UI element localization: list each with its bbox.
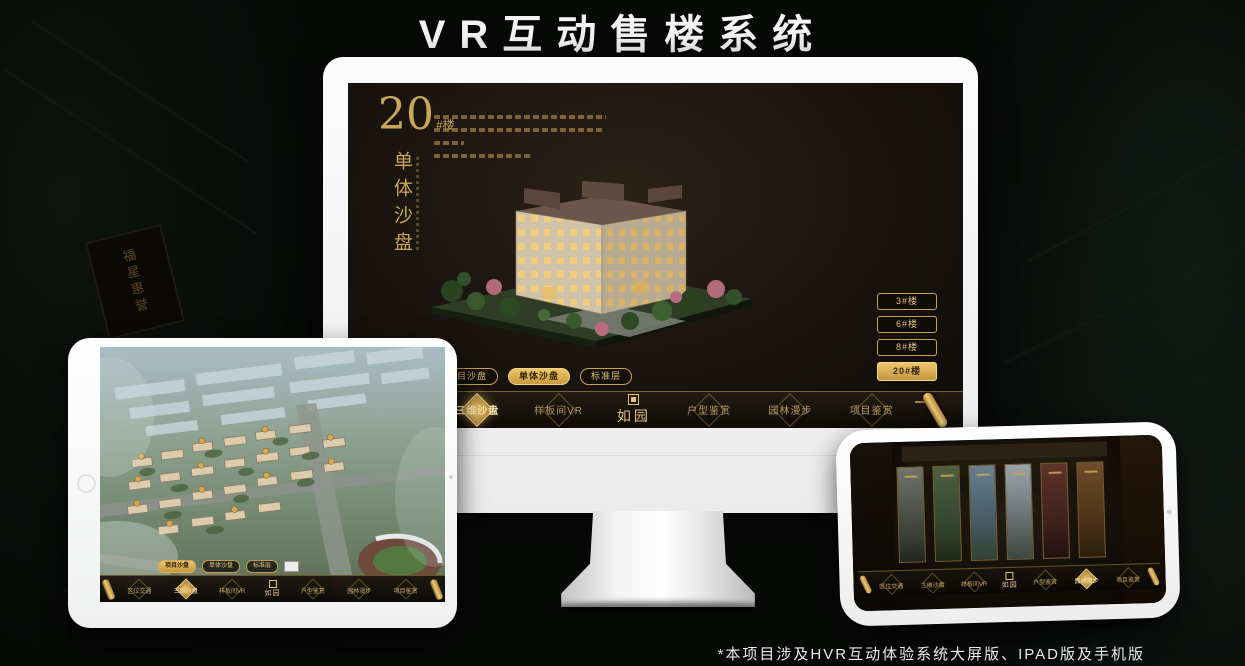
- nav-item-garden-walk[interactable]: 园林漫步: [1067, 569, 1105, 588]
- nav-item-showroom-vr[interactable]: 样板间VR: [523, 401, 595, 419]
- tablet-camera-icon: [449, 475, 453, 479]
- building-number: 20: [378, 89, 434, 140]
- nav-item-project-view[interactable]: 项目鉴赏: [1109, 568, 1147, 587]
- footnote-text: *本项目涉及HVR互动体验系统大屏版、IPAD版及手机版: [718, 643, 1145, 664]
- description-paragraph: [434, 115, 784, 167]
- phone-screen: 区位交通 三维沙盘 样板间VR 如园 户型鉴赏: [850, 435, 1167, 612]
- seal-icon: [269, 580, 277, 588]
- scene-panel[interactable]: [968, 464, 998, 561]
- tablet-tab-project-sandtable[interactable]: 项目沙盘: [158, 560, 196, 573]
- ruyuan-logo: 如园: [260, 580, 286, 598]
- scroll-menu-icon[interactable]: [429, 578, 443, 600]
- floor-button-6[interactable]: 6#楼: [877, 316, 937, 333]
- floor-button-8[interactable]: 8#楼: [877, 339, 937, 356]
- building-3d-model[interactable]: [424, 169, 764, 354]
- plaque-text: 福星惠誉: [118, 247, 153, 318]
- description-line: [434, 115, 606, 119]
- phone-camera-icon: [1167, 509, 1172, 514]
- tab-single-sandtable[interactable]: 单体沙盘: [508, 368, 570, 385]
- page-title: VR互动售楼系统: [0, 2, 1245, 60]
- section-title-vertical: 单体沙盘: [388, 151, 415, 259]
- seal-icon: [628, 394, 639, 405]
- scroll-menu-icon[interactable]: [101, 578, 115, 600]
- page: 福星惠誉 VR互动售楼系统 20#楼 单体沙盘: [0, 0, 1245, 666]
- tab-standard-floor[interactable]: 标准层: [580, 368, 632, 385]
- floor-button-group: 3#楼 6#楼 8#楼 20#楼: [877, 293, 937, 381]
- tablet-mode-tab-group: 项目沙盘 单体沙盘 标准层: [158, 560, 299, 573]
- ruyuan-logo: 如园: [996, 571, 1022, 590]
- scene-panel[interactable]: [932, 465, 962, 562]
- phone-device: 区位交通 三维沙盘 样板间VR 如园 户型鉴赏: [835, 421, 1180, 626]
- nav-item-location[interactable]: 区位交通: [872, 574, 910, 593]
- nav-item-project-view[interactable]: 项目鉴赏: [836, 401, 908, 419]
- description-line: [434, 141, 464, 145]
- tablet-home-button[interactable]: [77, 474, 96, 493]
- scene-panel[interactable]: [1004, 463, 1034, 560]
- scroll-menu-icon[interactable]: [1147, 567, 1161, 587]
- ruyuan-logo: 如园: [604, 394, 664, 426]
- tablet-tab-standard-floor[interactable]: 标准层: [246, 560, 278, 573]
- nav-item-unit-plans[interactable]: 户型鉴赏: [673, 401, 745, 419]
- scene-panel-gallery: [896, 461, 1106, 563]
- background-road-line: [1004, 239, 1245, 364]
- nav-item-garden-walk[interactable]: 园林漫步: [340, 580, 378, 598]
- description-line: [434, 128, 602, 132]
- tablet-screen: 项目沙盘 单体沙盘 标准层 区位交通 三维沙盘 样板间VR: [100, 347, 445, 602]
- description-line: [434, 154, 530, 158]
- nav-item-project-view[interactable]: 项目鉴赏: [387, 580, 425, 598]
- vertical-title-ornament: [416, 157, 419, 253]
- scene-panel[interactable]: [1040, 462, 1070, 559]
- tablet-nav-bar: 区位交通 三维沙盘 样板间VR 如园 户型鉴赏: [100, 575, 445, 602]
- nav-item-showroom-vr[interactable]: 样板间VR: [955, 572, 993, 591]
- tablet-tab-single-sandtable[interactable]: 单体沙盘: [202, 560, 240, 573]
- nav-item-showroom-vr[interactable]: 样板间VR: [213, 580, 251, 598]
- nav-item-3d-sandtable[interactable]: 三维沙盘: [913, 573, 951, 592]
- monitor-stand-shadow: [548, 602, 768, 612]
- background-road-line: [3, 69, 256, 235]
- tablet-device: 项目沙盘 单体沙盘 标准层 区位交通 三维沙盘 样板间VR: [68, 338, 457, 628]
- monitor-stand: [555, 511, 761, 607]
- nav-item-garden-walk[interactable]: 园林漫步: [754, 401, 826, 419]
- mode-tab-group: 项目沙盘 单体沙盘 标准层: [436, 368, 632, 385]
- nav-item-unit-plans[interactable]: 户型鉴赏: [1026, 570, 1064, 589]
- nav-item-unit-plans[interactable]: 户型鉴赏: [294, 580, 332, 598]
- scroll-menu-icon[interactable]: [917, 394, 951, 426]
- floor-button-3[interactable]: 3#楼: [877, 293, 937, 310]
- scroll-menu-icon[interactable]: [859, 575, 873, 595]
- nav-item-3d-sandtable[interactable]: 三维沙盘: [167, 580, 205, 598]
- background-road-line: [1025, 139, 1245, 264]
- seal-icon: [1005, 571, 1013, 579]
- nav-item-location[interactable]: 区位交通: [120, 580, 158, 598]
- scene-panel[interactable]: [896, 466, 926, 563]
- background-plaque: 福星惠誉: [85, 224, 185, 340]
- floor-button-20[interactable]: 20#楼: [877, 362, 937, 381]
- mini-map-icon[interactable]: [284, 561, 299, 572]
- scroll-end: [939, 419, 947, 427]
- scene-panel[interactable]: [1076, 461, 1106, 558]
